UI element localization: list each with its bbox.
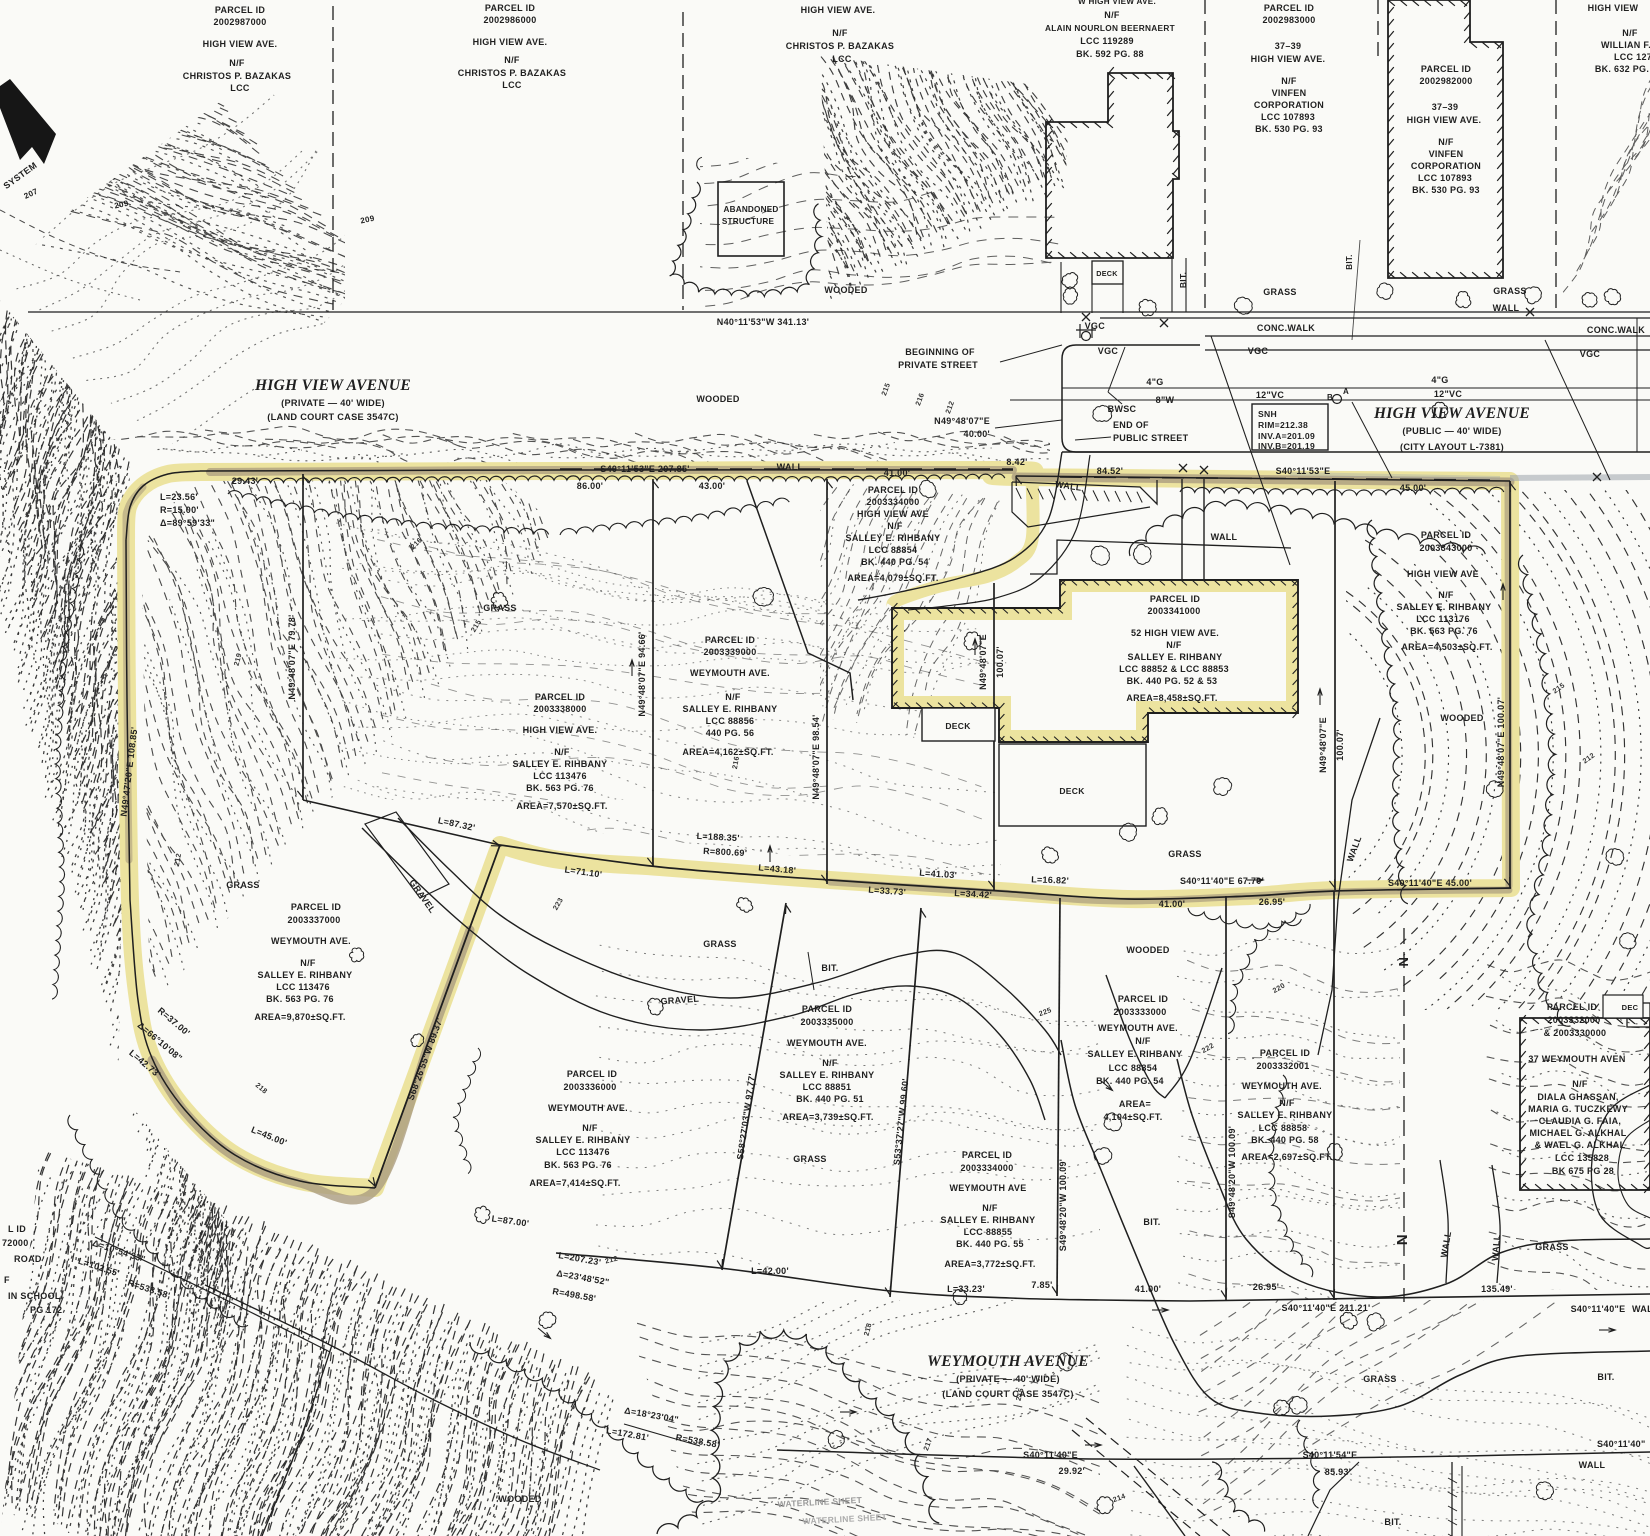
svg-text:INV.B=201.19: INV.B=201.19 (1258, 441, 1315, 451)
svg-text:2002987000: 2002987000 (213, 17, 266, 27)
svg-text:AREA=4,162±SQ.FT.: AREA=4,162±SQ.FT. (682, 747, 773, 757)
svg-text:N/F: N/F (554, 747, 570, 757)
svg-text:SALLEY E. RIHBANY: SALLEY E. RIHBANY (780, 1070, 875, 1080)
svg-text:100.07': 100.07' (995, 646, 1005, 678)
svg-text:40.00': 40.00' (964, 429, 990, 439)
svg-text:LCC 113476: LCC 113476 (533, 771, 587, 781)
svg-text:SALLEY E. RIHBANY: SALLEY E. RIHBANY (683, 704, 778, 714)
svg-text:N/F: N/F (300, 958, 316, 968)
svg-text:440 PG. 56: 440 PG. 56 (706, 728, 755, 738)
svg-text:BIT.: BIT. (1384, 1517, 1401, 1527)
svg-text:GRASS: GRASS (1493, 286, 1527, 296)
svg-text:N/F: N/F (1438, 590, 1454, 600)
svg-text:VINFEN: VINFEN (1272, 88, 1307, 98)
svg-text:HIGH VIEW AVE.: HIGH VIEW AVE. (203, 39, 278, 49)
svg-text:S40°11'40"E 67.70': S40°11'40"E 67.70' (1180, 876, 1264, 886)
svg-text:HIGH VIEW AVENUE: HIGH VIEW AVENUE (254, 377, 411, 394)
svg-text:PARCEL ID: PARCEL ID (485, 3, 536, 13)
svg-text:VINFEN: VINFEN (1429, 149, 1464, 159)
svg-text:2003334000: 2003334000 (866, 497, 919, 507)
svg-text:PARCEL ID: PARCEL ID (567, 1069, 618, 1079)
svg-text:END OF: END OF (1113, 420, 1149, 430)
svg-text:N/F: N/F (1104, 10, 1120, 20)
svg-text:ABANDONED: ABANDONED (723, 205, 778, 214)
svg-text:INV.A=201.09: INV.A=201.09 (1258, 431, 1315, 441)
svg-text:2003339000: 2003339000 (703, 647, 756, 657)
svg-text:PARCEL ID: PARCEL ID (962, 1150, 1013, 1160)
svg-text:N49°48'07"E 100.07': N49°48'07"E 100.07' (1496, 697, 1506, 787)
svg-text:WEYMOUTH AVE.: WEYMOUTH AVE. (787, 1038, 867, 1048)
svg-text:WALL: WALL (1211, 532, 1238, 542)
svg-text:ROAD: ROAD (14, 1254, 42, 1264)
svg-text:8"W: 8"W (1156, 395, 1175, 405)
svg-text:PUBLIC STREET: PUBLIC STREET (1113, 433, 1189, 443)
svg-text:SALLEY E. RIHBANY: SALLEY E. RIHBANY (513, 759, 608, 769)
svg-text:HIGH VIEW AVENUE: HIGH VIEW AVENUE (1373, 405, 1530, 422)
svg-text:N40°11'53"W 341.13': N40°11'53"W 341.13' (717, 317, 809, 327)
svg-text:PARCEL ID: PARCEL ID (868, 485, 919, 495)
svg-text:BIT.: BIT. (1143, 1217, 1160, 1227)
svg-text:CONC.WALK: CONC.WALK (1257, 323, 1315, 333)
svg-text:LCC 119289: LCC 119289 (1080, 36, 1134, 46)
svg-text:12"VC: 12"VC (1256, 390, 1284, 400)
svg-text:41.00': 41.00' (884, 468, 910, 478)
svg-text:WEYMOUTH AVE.: WEYMOUTH AVE. (1242, 1081, 1322, 1091)
svg-text:7.85': 7.85' (1031, 1280, 1052, 1290)
svg-text:L=42.00': L=42.00' (751, 1266, 789, 1276)
svg-text:85.93': 85.93' (1325, 1467, 1351, 1477)
svg-text:SALLEY E. RIHBANY: SALLEY E. RIHBANY (846, 533, 941, 543)
svg-text:2003335000: 2003335000 (800, 1017, 853, 1027)
svg-text:LCC 113476: LCC 113476 (276, 982, 330, 992)
svg-text:S40°11'40": S40°11'40" (1597, 1439, 1646, 1449)
svg-text:BK. 632 PG.: BK. 632 PG. (1595, 64, 1649, 74)
svg-text:AREA=4,079±SQ.FT.: AREA=4,079±SQ.FT. (847, 573, 938, 583)
svg-text:HIGH VIEW AVE.: HIGH VIEW AVE. (801, 5, 876, 15)
svg-text:2002983000: 2002983000 (1262, 15, 1315, 25)
svg-text:SALLEY E. RIHBANY: SALLEY E. RIHBANY (1088, 1049, 1183, 1059)
svg-text:WALL: WALL (1632, 1304, 1650, 1314)
svg-text:GRASS: GRASS (226, 880, 260, 890)
svg-text:LCC 88855: LCC 88855 (964, 1227, 1013, 1237)
svg-text:LCC: LCC (230, 83, 250, 93)
svg-text:CORPORATION: CORPORATION (1254, 100, 1324, 110)
svg-text:S40°11'53"E 207.85': S40°11'53"E 207.85' (600, 464, 689, 474)
svg-text:BK 675 PG 28: BK 675 PG 28 (1552, 1166, 1614, 1176)
svg-text:S40°11'40"E: S40°11'40"E (1571, 1304, 1626, 1314)
svg-text:IN SCHOOL: IN SCHOOL (8, 1291, 61, 1301)
svg-text:CLAUDIA G. FAIA,: CLAUDIA G. FAIA, (1539, 1116, 1621, 1126)
svg-text:N/F: N/F (832, 28, 848, 38)
svg-text:HIGH VIEW AVE.: HIGH VIEW AVE. (523, 725, 598, 735)
svg-text:HIGH VIEW AVE: HIGH VIEW AVE (857, 509, 929, 519)
svg-text:WEYMOUTH AVE: WEYMOUTH AVE (949, 1183, 1026, 1193)
svg-text:GRASS: GRASS (483, 603, 517, 613)
svg-text:CHRISTOS P. BAZAKAS: CHRISTOS P. BAZAKAS (786, 41, 894, 51)
svg-text:72000: 72000 (2, 1238, 29, 1248)
svg-text:L=23.56': L=23.56' (160, 492, 198, 502)
svg-text:SALLEY E. RIHBANY: SALLEY E. RIHBANY (1238, 1110, 1333, 1120)
svg-text:GRASS: GRASS (793, 1154, 827, 1164)
svg-text:AREA=7,414±SQ.FT.: AREA=7,414±SQ.FT. (529, 1178, 620, 1188)
svg-text:VGC: VGC (1085, 321, 1106, 331)
svg-text:R=15.00': R=15.00' (160, 505, 199, 515)
svg-text:86.00': 86.00' (577, 481, 603, 491)
svg-text:N49°48'07"E 79.78': N49°48'07"E 79.78' (287, 614, 297, 699)
svg-text:N/F: N/F (504, 55, 520, 65)
svg-text:S40°11'54"E: S40°11'54"E (1303, 1450, 1358, 1460)
svg-text:LCC 127: LCC 127 (1614, 52, 1650, 62)
svg-text:HIGH VIEW AVE.: HIGH VIEW AVE. (1251, 54, 1326, 64)
svg-text:N49°48'07"E: N49°48'07"E (934, 416, 990, 426)
svg-text:BIT.: BIT. (821, 963, 838, 973)
svg-text:N: N (1396, 957, 1411, 967)
svg-text:AREA=2,697±SQ.FT.: AREA=2,697±SQ.FT. (1241, 1152, 1332, 1162)
svg-text:N/F: N/F (1135, 1036, 1151, 1046)
svg-text:& 2003330000: & 2003330000 (1544, 1028, 1607, 1038)
svg-text:41.00': 41.00' (1135, 1284, 1161, 1294)
svg-text:N/F: N/F (725, 692, 741, 702)
svg-text:CHRISTOS P. BAZAKAS: CHRISTOS P. BAZAKAS (458, 68, 566, 78)
svg-text:PG 172: PG 172 (30, 1305, 62, 1315)
svg-text:SALLEY E. RIHBANY: SALLEY E. RIHBANY (1128, 652, 1223, 662)
svg-text:PARCEL ID: PARCEL ID (1264, 3, 1315, 13)
svg-text:WEYMOUTH AVE.: WEYMOUTH AVE. (1098, 1023, 1178, 1033)
svg-text:SALLEY E. RIHBANY: SALLEY E. RIHBANY (941, 1215, 1036, 1225)
svg-text:N/F: N/F (1572, 1079, 1588, 1089)
svg-text:S40°11'40"E: S40°11'40"E (1023, 1450, 1078, 1460)
svg-text:WEYMOUTH AVE.: WEYMOUTH AVE. (690, 668, 770, 678)
svg-text:N/F: N/F (1279, 1098, 1295, 1108)
svg-text:VGC: VGC (1098, 346, 1119, 356)
svg-text:WOODED: WOODED (1440, 713, 1483, 723)
svg-text:AREA=3,772±SQ.FT.: AREA=3,772±SQ.FT. (944, 1259, 1035, 1269)
svg-text:SALLEY E. RIHBANY: SALLEY E. RIHBANY (258, 970, 353, 980)
svg-text:37–39: 37–39 (1275, 41, 1302, 51)
svg-text:Δ=89°59'33": Δ=89°59'33" (160, 518, 215, 528)
svg-text:29.43': 29.43' (232, 476, 258, 486)
svg-text:2003337000: 2003337000 (287, 915, 340, 925)
svg-text:45.00': 45.00' (1400, 483, 1426, 493)
svg-text:N/F: N/F (1281, 76, 1297, 86)
svg-text:W HIGH VIEW AVE.: W HIGH VIEW AVE. (1078, 0, 1156, 6)
svg-text:N49°48'07"E 98.54': N49°48'07"E 98.54' (811, 714, 821, 799)
svg-text:N/F: N/F (1438, 137, 1454, 147)
svg-text:WOODED: WOODED (498, 1494, 541, 1504)
svg-text:CONC.WALK: CONC.WALK (1587, 325, 1645, 335)
svg-text:100.07': 100.07' (1335, 729, 1345, 761)
svg-text:WALL: WALL (777, 462, 804, 472)
svg-text:AREA=: AREA= (1119, 1099, 1151, 1109)
svg-text:26.95': 26.95' (1259, 897, 1285, 907)
svg-text:2003334000: 2003334000 (960, 1163, 1013, 1173)
svg-text:(CITY LAYOUT L-7381): (CITY LAYOUT L-7381) (1400, 442, 1504, 452)
svg-text:BK. 440 PG. 54: BK. 440 PG. 54 (1096, 1076, 1164, 1086)
svg-text:HIGH VIEW AVE.: HIGH VIEW AVE. (473, 37, 548, 47)
svg-text:84.52': 84.52' (1097, 466, 1123, 476)
svg-text:N/F: N/F (887, 521, 903, 531)
svg-text:S40°11'40"E 211.21': S40°11'40"E 211.21' (1282, 1303, 1371, 1313)
svg-text:N/F: N/F (229, 58, 245, 68)
svg-text:N/F: N/F (1622, 28, 1638, 38)
svg-text:N49°48'07"E: N49°48'07"E (978, 634, 988, 690)
svg-text:A: A (1343, 387, 1349, 396)
svg-text:BWSC: BWSC (1108, 404, 1137, 414)
svg-text:BIT.: BIT. (1178, 272, 1188, 288)
svg-text:PARCEL ID: PARCEL ID (215, 5, 266, 15)
svg-text:CHRISTOS P. BAZAKAS: CHRISTOS P. BAZAKAS (183, 71, 291, 81)
svg-text:PARCEL ID: PARCEL ID (1421, 64, 1472, 74)
svg-text:S40°11'53"E: S40°11'53"E (1276, 466, 1331, 476)
svg-text:2003333000: 2003333000 (1113, 1007, 1166, 1017)
svg-text:LCC 135828: LCC 135828 (1555, 1153, 1609, 1163)
svg-text:F: F (4, 1275, 10, 1285)
svg-text:WEYMOUTH AVENUE: WEYMOUTH AVENUE (927, 1353, 1089, 1370)
svg-text:37 WEYMOUTH AVEN: 37 WEYMOUTH AVEN (1528, 1054, 1625, 1064)
svg-text:BK. 440 PG. 55: BK. 440 PG. 55 (956, 1239, 1024, 1249)
svg-text:LCC 88851: LCC 88851 (803, 1082, 852, 1092)
svg-text:2002982000: 2002982000 (1419, 76, 1472, 86)
svg-text:DECK: DECK (1059, 786, 1085, 796)
svg-text:GRASS: GRASS (1263, 287, 1297, 297)
svg-text:DEC: DEC (1622, 1003, 1639, 1012)
svg-text:(LAND COURT CASE 3547C): (LAND COURT CASE 3547C) (267, 412, 398, 422)
svg-text:PARCEL ID: PARCEL ID (705, 635, 756, 645)
svg-text:BK. 563 PG. 76: BK. 563 PG. 76 (1410, 626, 1478, 636)
svg-text:WALL: WALL (1493, 303, 1520, 313)
svg-text:LCC 107893: LCC 107893 (1418, 173, 1472, 183)
svg-text:B: B (1327, 393, 1333, 402)
svg-text:PARCEL ID: PARCEL ID (1118, 994, 1169, 1004)
svg-text:LCC 113176: LCC 113176 (1416, 614, 1470, 624)
svg-text:L=16.82': L=16.82' (1031, 874, 1069, 885)
svg-text:SNH: SNH (1258, 409, 1277, 419)
svg-text:SALLEY E. RIHBANY: SALLEY E. RIHBANY (536, 1135, 631, 1145)
svg-text:DECK: DECK (1096, 269, 1118, 278)
svg-text:N: N (1393, 1234, 1410, 1245)
svg-text:N49°48'07"E: N49°48'07"E (1318, 717, 1328, 773)
svg-text:WALL: WALL (1579, 1460, 1606, 1470)
svg-text:LCC: LCC (502, 80, 522, 90)
svg-text:2003336000: 2003336000 (563, 1082, 616, 1092)
svg-text:L=34.42': L=34.42' (954, 888, 992, 900)
svg-text:HIGH VIEW AVE: HIGH VIEW AVE (1407, 569, 1479, 579)
svg-text:L ID: L ID (8, 1224, 26, 1234)
svg-text:12"VC: 12"VC (1434, 389, 1462, 399)
svg-text:ALAIN NOURLON BEERNAERT: ALAIN NOURLON BEERNAERT (1045, 24, 1175, 33)
svg-text:AREA=8,458±SQ.FT.: AREA=8,458±SQ.FT. (1126, 693, 1217, 703)
svg-text:2003332001: 2003332001 (1256, 1061, 1309, 1071)
svg-text:N49°48'07"E 94.66': N49°48'07"E 94.66' (637, 631, 647, 716)
svg-text:2003338000: 2003338000 (533, 704, 586, 714)
svg-text:PARCEL ID: PARCEL ID (535, 692, 586, 702)
svg-text:4"G: 4"G (1146, 377, 1163, 387)
svg-text:MICHAEL G. ALKHAL: MICHAEL G. ALKHAL (1529, 1128, 1626, 1138)
svg-text:WEYMOUTH AVE.: WEYMOUTH AVE. (271, 936, 351, 946)
svg-text:S49°48'20"W 100.09': S49°48'20"W 100.09' (1058, 1159, 1068, 1251)
svg-text:PARCEL ID: PARCEL ID (1150, 594, 1201, 604)
svg-text:HIGH VIEW: HIGH VIEW (1588, 3, 1639, 13)
svg-text:BK. 530 PG. 93: BK. 530 PG. 93 (1255, 124, 1323, 134)
svg-text:(PRIVATE — 40' WIDE): (PRIVATE — 40' WIDE) (281, 398, 385, 408)
svg-text:HIGH VIEW AVE.: HIGH VIEW AVE. (1407, 115, 1482, 125)
svg-text:GRASS: GRASS (1535, 1242, 1569, 1252)
svg-text:8.42': 8.42' (1006, 457, 1027, 467)
svg-text:L=33.23': L=33.23' (947, 1284, 985, 1294)
svg-text:AREA=9,870±SQ.FT.: AREA=9,870±SQ.FT. (254, 1012, 345, 1022)
svg-text:PARCEL ID: PARCEL ID (1421, 530, 1472, 540)
svg-text:43.00': 43.00' (699, 481, 725, 491)
svg-text:WOODED: WOODED (1126, 945, 1169, 955)
svg-text:WILLIAN F.: WILLIAN F. (1601, 40, 1650, 50)
svg-text:LCC 113476: LCC 113476 (556, 1147, 610, 1157)
svg-text:PARCEL ID: PARCEL ID (1260, 1048, 1311, 1058)
svg-text:BK. 440 PG. 54: BK. 440 PG. 54 (861, 557, 929, 567)
svg-text:WOODED: WOODED (696, 394, 739, 404)
svg-text:LCC 88856: LCC 88856 (706, 716, 755, 726)
svg-text:(PUBLIC — 40' WIDE): (PUBLIC — 40' WIDE) (1402, 426, 1501, 436)
svg-text:4"G: 4"G (1431, 375, 1448, 385)
svg-text:2003341000: 2003341000 (1147, 606, 1200, 616)
svg-text:RIM=212.38: RIM=212.38 (1258, 420, 1308, 430)
svg-text:MARIA G. TUCZKEWY: MARIA G. TUCZKEWY (1528, 1104, 1628, 1114)
svg-text:52 HIGH VIEW AVE.: 52 HIGH VIEW AVE. (1131, 628, 1219, 638)
svg-text:PARCEL ID: PARCEL ID (291, 902, 342, 912)
svg-text:29.92': 29.92' (1059, 1466, 1085, 1476)
svg-text:DIALA GHASSAN,: DIALA GHASSAN, (1537, 1092, 1618, 1102)
svg-text:AREA=7,570±SQ.FT.: AREA=7,570±SQ.FT. (516, 801, 607, 811)
svg-text:STRUCTURE: STRUCTURE (722, 217, 775, 226)
svg-text:AREA=3,739±SQ.FT.: AREA=3,739±SQ.FT. (782, 1112, 873, 1122)
svg-text:LCC 88854: LCC 88854 (869, 545, 918, 555)
svg-text:BIT.: BIT. (1597, 1372, 1614, 1382)
svg-text:& WAEL G. ALKHAL: & WAEL G. ALKHAL (1535, 1140, 1626, 1150)
svg-text:LCC 107893: LCC 107893 (1261, 112, 1315, 122)
svg-text:BEGINNING OF: BEGINNING OF (905, 347, 975, 357)
svg-text:BK. 592 PG. 88: BK. 592 PG. 88 (1076, 49, 1144, 59)
svg-text:BK. 440 PG. 51: BK. 440 PG. 51 (796, 1094, 864, 1104)
svg-text:S40°11'40"E 45.00': S40°11'40"E 45.00' (1388, 878, 1472, 888)
svg-text:DECK: DECK (945, 721, 971, 731)
svg-text:AREA=4,503±SQ.FT.: AREA=4,503±SQ.FT. (1401, 642, 1492, 652)
svg-text:41.00': 41.00' (1159, 899, 1185, 909)
svg-text:PRIVATE STREET: PRIVATE STREET (898, 360, 978, 370)
svg-text:BIT.: BIT. (1345, 254, 1354, 269)
svg-text:2003343000: 2003343000 (1419, 543, 1472, 553)
svg-text:WEYMOUTH AVE.: WEYMOUTH AVE. (548, 1103, 628, 1113)
svg-text:GRASS: GRASS (1363, 1374, 1397, 1384)
svg-text:N/F: N/F (1166, 640, 1182, 650)
svg-text:N/F: N/F (822, 1058, 838, 1068)
svg-text:(PRIVATE — 40' WIDE): (PRIVATE — 40' WIDE) (956, 1374, 1060, 1384)
svg-text:(LAND COURT CASE 3547C): (LAND COURT CASE 3547C) (942, 1389, 1073, 1399)
svg-text:BK. 563 PG. 76: BK. 563 PG. 76 (526, 783, 594, 793)
svg-text:135.49': 135.49' (1481, 1284, 1513, 1294)
svg-text:2002986000: 2002986000 (483, 15, 536, 25)
svg-text:N/F: N/F (582, 1123, 598, 1133)
svg-text:WOODED: WOODED (824, 285, 867, 295)
svg-text:PARCEL ID: PARCEL ID (1547, 1002, 1598, 1012)
svg-text:2003332000: 2003332000 (1547, 1015, 1600, 1025)
svg-text:BK. 563 PG. 76: BK. 563 PG. 76 (266, 994, 334, 1004)
svg-text:BK. 530 PG. 93: BK. 530 PG. 93 (1412, 185, 1480, 195)
svg-text:VGC: VGC (1248, 346, 1269, 356)
svg-text:26.95': 26.95' (1253, 1282, 1279, 1292)
svg-text:4,104±SQ.FT.: 4,104±SQ.FT. (1103, 1112, 1162, 1122)
svg-text:BK. 440 PG. 58: BK. 440 PG. 58 (1251, 1135, 1319, 1145)
svg-text:S49°48'20"W 100.09': S49°48'20"W 100.09' (1227, 1126, 1237, 1218)
svg-text:VGC: VGC (1580, 349, 1601, 359)
svg-text:GRASS: GRASS (703, 939, 737, 949)
svg-text:N/F: N/F (982, 1203, 998, 1213)
svg-text:LCC 88852 & LCC 88853: LCC 88852 & LCC 88853 (1119, 664, 1229, 674)
svg-text:GRASS: GRASS (1168, 849, 1202, 859)
svg-text:PARCEL ID: PARCEL ID (802, 1004, 853, 1014)
svg-text:BK. 440 PG. 52 & 53: BK. 440 PG. 52 & 53 (1127, 676, 1218, 686)
svg-text:LCC 88858: LCC 88858 (1259, 1123, 1308, 1133)
svg-text:LCC 88854: LCC 88854 (1109, 1063, 1158, 1073)
svg-text:CORPORATION: CORPORATION (1411, 161, 1481, 171)
svg-text:SALLEY E. RIHBANY: SALLEY E. RIHBANY (1397, 602, 1492, 612)
svg-text:BK. 563 PG. 76: BK. 563 PG. 76 (544, 1160, 612, 1170)
svg-text:LCC: LCC (832, 54, 852, 64)
svg-text:37–39: 37–39 (1432, 102, 1459, 112)
